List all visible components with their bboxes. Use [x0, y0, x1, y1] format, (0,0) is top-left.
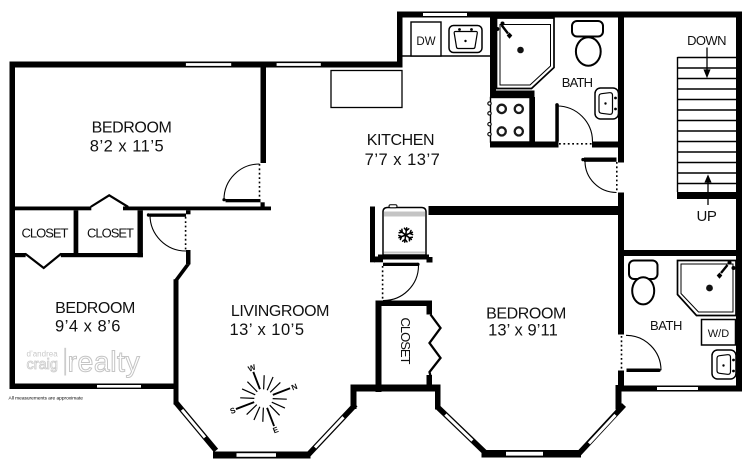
svg-text:13’ x 9’11: 13’ x 9’11 — [488, 322, 558, 340]
svg-text:DW: DW — [416, 36, 435, 48]
svg-text:UP: UP — [696, 208, 716, 225]
svg-text:realty: realty — [68, 347, 141, 379]
svg-text:BEDROOM: BEDROOM — [486, 306, 566, 323]
svg-text:BATH: BATH — [562, 75, 593, 90]
svg-text:DOWN: DOWN — [687, 33, 726, 48]
svg-text:9’4 x 8’6: 9’4 x 8’6 — [55, 318, 121, 336]
svg-text:CLOSET: CLOSET — [21, 225, 68, 240]
svg-text:8’2 x 11’5: 8’2 x 11’5 — [90, 138, 164, 156]
svg-text:BATH: BATH — [650, 318, 682, 333]
svg-text:BEDROOM: BEDROOM — [55, 300, 135, 317]
svg-text:W/D: W/D — [708, 328, 729, 340]
svg-text:CLOSET: CLOSET — [398, 317, 413, 364]
svg-text:BEDROOM: BEDROOM — [92, 120, 172, 137]
svg-text:KITCHEN: KITCHEN — [367, 132, 434, 149]
svg-text:13’ x 10’5: 13’ x 10’5 — [229, 321, 304, 339]
svg-text:LIVINGROOM: LIVINGROOM — [231, 303, 329, 320]
svg-text:All measurements are approxima: All measurements are approximate — [9, 396, 84, 402]
svg-text:7’7 x 13’7: 7’7 x 13’7 — [365, 151, 441, 169]
svg-text:CLOSET: CLOSET — [87, 225, 134, 240]
svg-text:craig: craig — [27, 357, 58, 373]
